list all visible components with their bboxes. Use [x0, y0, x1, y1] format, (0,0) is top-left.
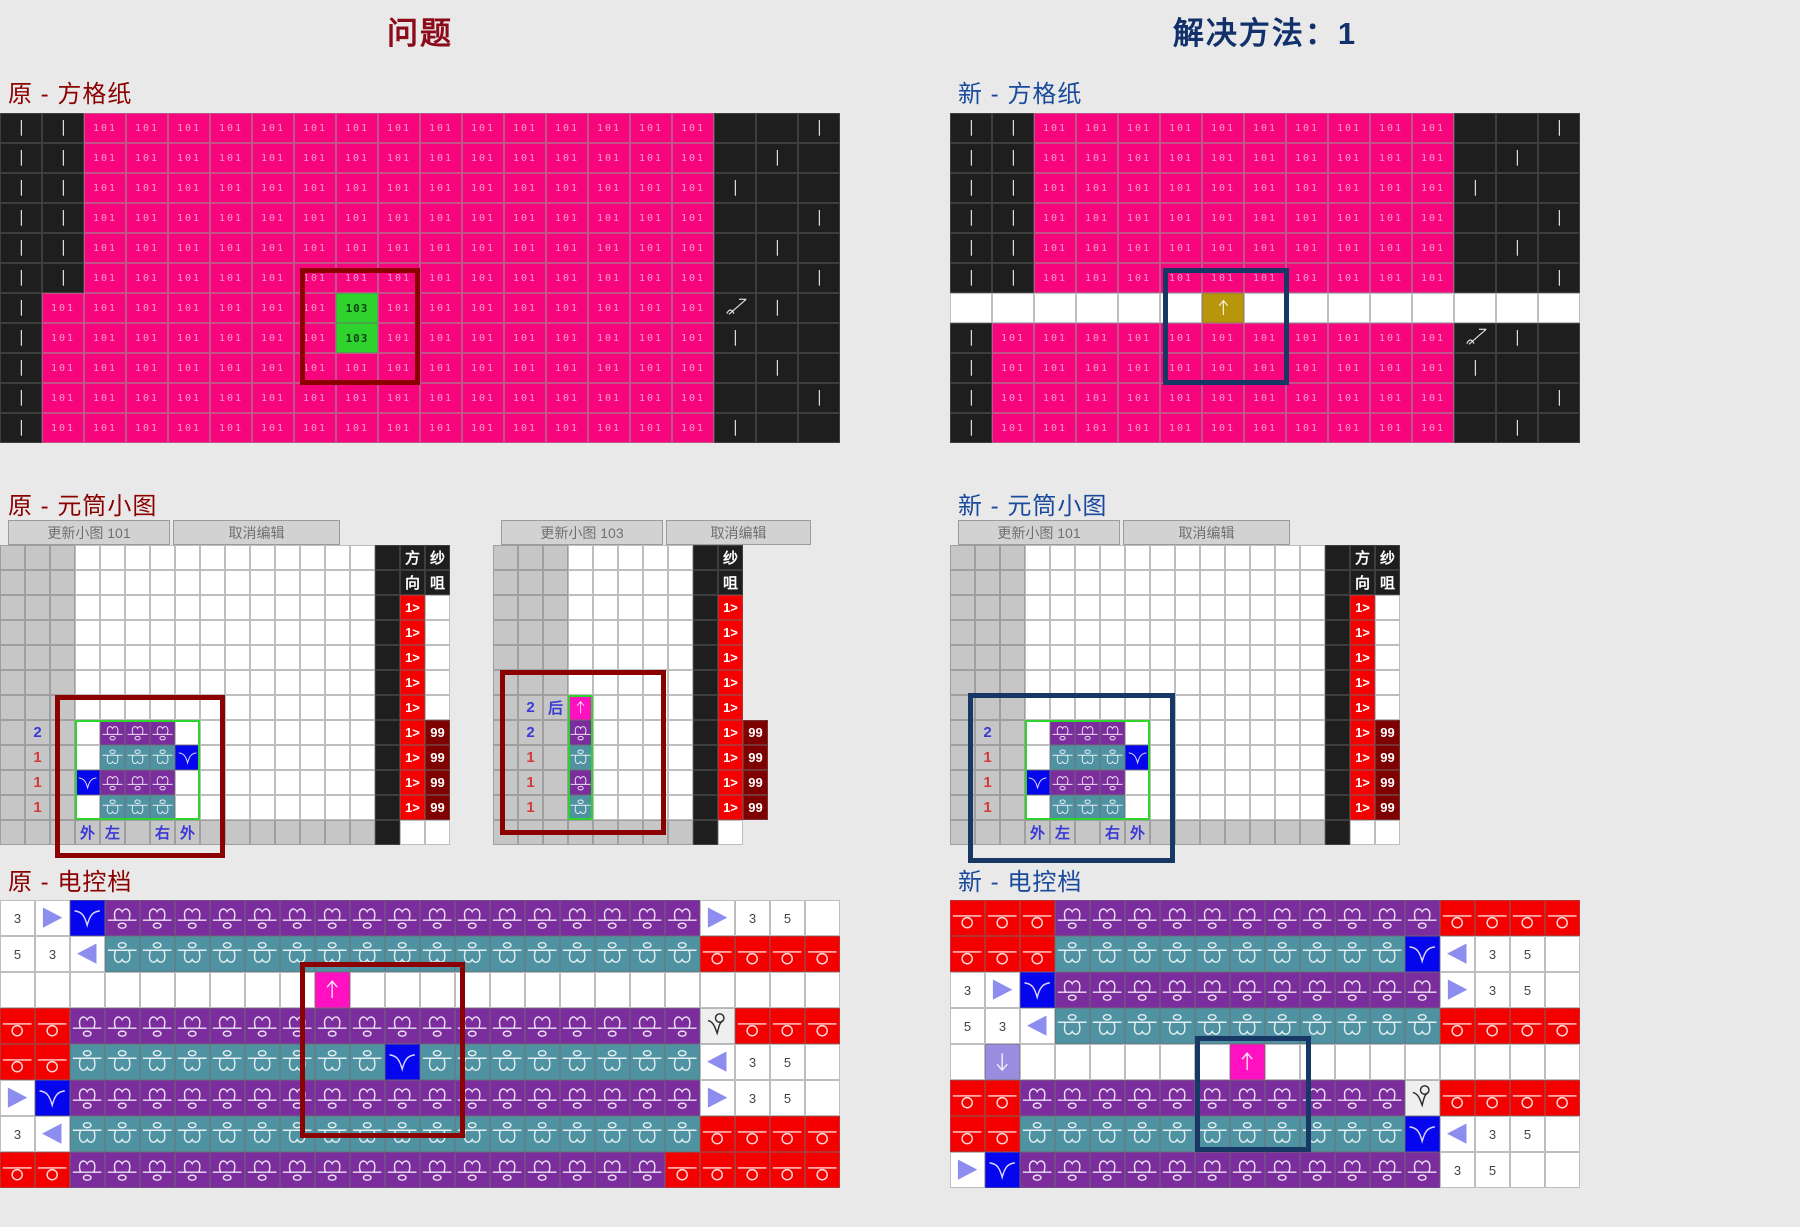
cell-needle[interactable]	[756, 233, 798, 263]
cell-stitch-101[interactable]: 101	[1034, 383, 1076, 413]
cell-empty[interactable]	[643, 670, 668, 695]
cell-front-knit[interactable]	[315, 1080, 350, 1116]
cell-empty[interactable]	[1175, 695, 1200, 720]
cell-stitch-101[interactable]: 101	[126, 113, 168, 143]
cell-empty[interactable]	[75, 620, 100, 645]
cell-red-knit[interactable]	[805, 1116, 840, 1152]
cell-front-knit[interactable]	[455, 1008, 490, 1044]
cell-empty[interactable]	[1075, 670, 1100, 695]
cell-stitch-101[interactable]: 101	[1244, 233, 1286, 263]
cell-needle[interactable]	[714, 413, 756, 443]
cell-stitch-101[interactable]: 101	[1118, 263, 1160, 293]
cell-front-knit[interactable]	[1265, 972, 1300, 1008]
cell-stitch-101[interactable]: 101	[1244, 413, 1286, 443]
cell-empty[interactable]	[1200, 795, 1225, 820]
cell-front-knit[interactable]	[1055, 972, 1090, 1008]
cell-stitch-101[interactable]: 101	[630, 413, 672, 443]
cell-empty[interactable]	[455, 972, 490, 1008]
cell-arrow-up[interactable]	[1230, 1044, 1265, 1080]
cell-empty[interactable]	[1150, 570, 1175, 595]
cell-front-knit[interactable]	[560, 1008, 595, 1044]
cell-empty[interactable]	[1100, 695, 1125, 720]
cell-needle[interactable]	[798, 113, 840, 143]
cell-red-knit[interactable]	[1475, 1008, 1510, 1044]
cell-stitch-101[interactable]: 101	[672, 383, 714, 413]
cell-empty[interactable]	[275, 695, 300, 720]
update-small-chart-101-button[interactable]: 更新小图 101	[8, 520, 170, 545]
cell-stitch-101[interactable]: 101	[1034, 353, 1076, 383]
cell-stitch-101[interactable]: 101	[210, 323, 252, 353]
cell-arrow-down[interactable]	[985, 1044, 1020, 1080]
cell-empty[interactable]	[1100, 620, 1125, 645]
cell-stitch-101[interactable]: 101	[1412, 353, 1454, 383]
cell-empty[interactable]	[668, 670, 693, 695]
cell-empty[interactable]	[200, 770, 225, 795]
cell-stitch-101[interactable]: 101	[252, 413, 294, 443]
cell-stitch-101[interactable]: 101	[168, 233, 210, 263]
cell-front-knit[interactable]	[1160, 1080, 1195, 1116]
cell-front-knit[interactable]	[150, 720, 175, 745]
cell-front-knit[interactable]	[1055, 1080, 1090, 1116]
cell-stitch-101[interactable]: 101	[992, 383, 1034, 413]
cell-stitch-101[interactable]: 101	[630, 263, 672, 293]
cell-empty[interactable]	[1225, 620, 1250, 645]
cell-stitch-101[interactable]: 101	[168, 203, 210, 233]
cell-empty[interactable]	[1250, 720, 1275, 745]
cell-stitch-101[interactable]: 101	[1412, 323, 1454, 353]
cell-empty[interactable]	[1250, 695, 1275, 720]
cell-empty[interactable]	[1225, 645, 1250, 670]
cell-stitch-101[interactable]: 101	[672, 353, 714, 383]
cell-black[interactable]	[756, 383, 798, 413]
cell-front-knit[interactable]	[560, 1152, 595, 1188]
cell-needle[interactable]	[1496, 323, 1538, 353]
cell-red-knit[interactable]	[0, 1044, 35, 1080]
cell-black[interactable]	[375, 570, 400, 595]
cell-front-knit[interactable]	[1300, 1080, 1335, 1116]
cell-needle[interactable]	[992, 173, 1034, 203]
cell-front-knit[interactable]	[1090, 1152, 1125, 1188]
cell-empty[interactable]	[1150, 595, 1175, 620]
cell-needle[interactable]	[0, 203, 42, 233]
cancel-edit-button[interactable]: 取消编辑	[1123, 520, 1290, 545]
cell-front-knit[interactable]	[175, 1152, 210, 1188]
cell-black[interactable]	[798, 323, 840, 353]
cell-front-knit[interactable]	[1370, 1080, 1405, 1116]
cell-black[interactable]	[756, 173, 798, 203]
cell-empty[interactable]	[275, 570, 300, 595]
cell-stitch-101[interactable]: 101	[294, 323, 336, 353]
cell-red-knit[interactable]	[1475, 1080, 1510, 1116]
cell-empty[interactable]	[1025, 620, 1050, 645]
cell-stitch-101[interactable]: 101	[1076, 383, 1118, 413]
cell-stitch-101[interactable]: 101	[252, 353, 294, 383]
cell-stitch-101[interactable]: 101	[1202, 323, 1244, 353]
cell-empty[interactable]	[643, 570, 668, 595]
cell-back-knit[interactable]	[525, 1044, 560, 1080]
cell-stitch-101[interactable]: 101	[1412, 203, 1454, 233]
cell-empty[interactable]	[105, 972, 140, 1008]
cell-back-knit[interactable]	[560, 936, 595, 972]
cell-back-knit[interactable]	[1300, 936, 1335, 972]
cell-empty[interactable]	[150, 620, 175, 645]
cell-empty[interactable]	[1100, 570, 1125, 595]
cell-needle[interactable]	[42, 113, 84, 143]
cell-empty[interactable]	[1125, 720, 1150, 745]
cell-tuck[interactable]	[1025, 770, 1050, 795]
cell-stitch-101[interactable]: 101	[294, 413, 336, 443]
cell-front-knit[interactable]	[1370, 972, 1405, 1008]
cell-empty[interactable]	[425, 670, 450, 695]
cell-empty[interactable]	[1300, 545, 1325, 570]
cell-empty[interactable]	[125, 570, 150, 595]
cell-black[interactable]	[375, 670, 400, 695]
cell-number[interactable]: 5	[950, 1008, 985, 1044]
cell-empty[interactable]	[75, 745, 100, 770]
cell-black[interactable]	[1325, 620, 1350, 645]
cell-front-knit[interactable]	[100, 720, 125, 745]
cell-empty[interactable]	[560, 972, 595, 1008]
cell-needle[interactable]	[1538, 383, 1580, 413]
cell-empty[interactable]	[1275, 670, 1300, 695]
cell-black[interactable]	[1325, 645, 1350, 670]
cell-empty[interactable]	[1025, 595, 1050, 620]
cell-empty[interactable]	[1300, 645, 1325, 670]
cell-front-knit[interactable]	[105, 1152, 140, 1188]
cell-black[interactable]	[1454, 113, 1496, 143]
cell-stitch-103[interactable]: 103	[336, 293, 378, 323]
cell-empty[interactable]	[200, 595, 225, 620]
cell-front-knit[interactable]	[525, 1152, 560, 1188]
cell-back-knit[interactable]	[1090, 936, 1125, 972]
cell-number[interactable]: 5	[1475, 1152, 1510, 1188]
cell-empty[interactable]	[643, 620, 668, 645]
cell-empty[interactable]	[1300, 770, 1325, 795]
cell-stitch-101[interactable]: 101	[336, 233, 378, 263]
cell-stitch-101[interactable]: 101	[546, 323, 588, 353]
cell-empty[interactable]	[100, 620, 125, 645]
cell-black[interactable]	[1454, 203, 1496, 233]
cell-red-knit[interactable]	[950, 936, 985, 972]
cell-stitch-101[interactable]: 101	[336, 203, 378, 233]
cell-stitch-101[interactable]: 101	[630, 353, 672, 383]
cell-stitch-101[interactable]: 101	[294, 293, 336, 323]
cell-empty[interactable]	[1050, 595, 1075, 620]
cell-empty[interactable]	[1175, 745, 1200, 770]
cell-red-knit[interactable]	[0, 1008, 35, 1044]
cell-direction[interactable]: 1>	[400, 720, 425, 745]
cell-empty[interactable]	[1025, 720, 1050, 745]
cell-stitch-101[interactable]: 101	[126, 263, 168, 293]
cell-empty[interactable]	[350, 745, 375, 770]
cell-stitch-101[interactable]: 101	[294, 143, 336, 173]
cell-stitch-101[interactable]: 101	[294, 383, 336, 413]
cell-stitch-101[interactable]: 101	[546, 203, 588, 233]
cell-needle[interactable]	[1496, 413, 1538, 443]
cell-front-knit[interactable]	[70, 1080, 105, 1116]
cell-empty[interactable]	[1050, 670, 1075, 695]
cell-red-knit[interactable]	[35, 1044, 70, 1080]
cell-front-knit[interactable]	[100, 770, 125, 795]
cell-empty[interactable]	[1100, 595, 1125, 620]
cell-empty[interactable]	[1375, 670, 1400, 695]
cell-empty[interactable]	[1125, 1044, 1160, 1080]
cell-stitch-101[interactable]: 101	[336, 143, 378, 173]
cell-empty[interactable]	[593, 620, 618, 645]
cell-needle[interactable]	[950, 173, 992, 203]
cell-stitch-101[interactable]: 101	[210, 173, 252, 203]
cell-carriage-left[interactable]	[1440, 936, 1475, 972]
cell-red-knit[interactable]	[1510, 1080, 1545, 1116]
cell-stitch-101[interactable]: 101	[168, 383, 210, 413]
cell-stitch-101[interactable]: 101	[588, 413, 630, 443]
cell-stitch-101[interactable]: 101	[252, 383, 294, 413]
cell-front-knit[interactable]	[125, 770, 150, 795]
cell-needle[interactable]	[1538, 113, 1580, 143]
cell-front-knit[interactable]	[595, 900, 630, 936]
cell-empty[interactable]	[275, 545, 300, 570]
cell-empty[interactable]	[618, 595, 643, 620]
cell-red-knit[interactable]	[950, 900, 985, 936]
cell-empty[interactable]	[1300, 570, 1325, 595]
cell-stitch-101[interactable]: 101	[1118, 413, 1160, 443]
cell-needle[interactable]	[0, 173, 42, 203]
cell-empty[interactable]	[200, 570, 225, 595]
cell-stitch-101[interactable]: 101	[1370, 353, 1412, 383]
cell-stitch-101[interactable]: 101	[126, 293, 168, 323]
cell-empty[interactable]	[425, 820, 450, 845]
cell-stitch-101[interactable]: 101	[1034, 323, 1076, 353]
cell-front-knit[interactable]	[175, 900, 210, 936]
cell-stitch-101[interactable]: 101	[294, 203, 336, 233]
cell-stitch-101[interactable]: 101	[462, 173, 504, 203]
cell-empty[interactable]	[350, 620, 375, 645]
cell-empty[interactable]	[225, 720, 250, 745]
cell-red-knit[interactable]	[735, 1008, 770, 1044]
cell-empty[interactable]	[1125, 595, 1150, 620]
cell-empty[interactable]	[643, 720, 668, 745]
cell-empty[interactable]	[125, 595, 150, 620]
cell-back-knit[interactable]	[1300, 1116, 1335, 1152]
cell-stitch-101[interactable]: 101	[630, 203, 672, 233]
cell-stitch-101[interactable]: 101	[336, 413, 378, 443]
cell-front-knit[interactable]	[1050, 770, 1075, 795]
cell-drop-stitch[interactable]	[700, 1008, 735, 1044]
cell-stitch-101[interactable]: 101	[168, 323, 210, 353]
cell-front-knit[interactable]	[280, 1152, 315, 1188]
cell-empty[interactable]	[225, 570, 250, 595]
cell-front-knit[interactable]	[1100, 770, 1125, 795]
cell-empty[interactable]	[643, 545, 668, 570]
cell-empty[interactable]	[200, 545, 225, 570]
cell-empty[interactable]	[1076, 293, 1118, 323]
cell-back-knit[interactable]	[568, 745, 593, 770]
cell-empty[interactable]	[618, 645, 643, 670]
cell-back-knit[interactable]	[665, 1044, 700, 1080]
cell-empty[interactable]	[1150, 795, 1175, 820]
cell-front-knit[interactable]	[1335, 900, 1370, 936]
cell-stitch-101[interactable]: 101	[420, 233, 462, 263]
cell-stitch-101[interactable]: 101	[546, 353, 588, 383]
cell-stitch-101[interactable]: 101	[336, 173, 378, 203]
cell-empty[interactable]	[568, 595, 593, 620]
cell-red-knit[interactable]	[985, 1116, 1020, 1152]
cell-number[interactable]: 5	[0, 936, 35, 972]
cell-empty[interactable]	[275, 595, 300, 620]
cell-red-knit[interactable]	[805, 1152, 840, 1188]
cell-empty[interactable]	[1275, 745, 1300, 770]
cell-stitch-101[interactable]: 101	[420, 263, 462, 293]
cell-stitch-101[interactable]: 101	[1286, 143, 1328, 173]
cell-needle[interactable]	[0, 413, 42, 443]
cell-front-knit[interactable]	[385, 900, 420, 936]
cell-stitch-101[interactable]: 101	[1328, 173, 1370, 203]
cell-empty[interactable]	[175, 695, 200, 720]
cell-front-knit[interactable]	[1195, 1152, 1230, 1188]
cell-front-knit[interactable]	[280, 1080, 315, 1116]
cell-black[interactable]	[756, 203, 798, 233]
cell-black[interactable]	[1496, 353, 1538, 383]
cell-stitch-101[interactable]: 101	[630, 323, 672, 353]
cell-stitch-101[interactable]: 101	[1412, 233, 1454, 263]
cell-back-knit[interactable]	[1265, 1008, 1300, 1044]
cell-empty[interactable]	[350, 720, 375, 745]
cell-back-knit[interactable]	[630, 1044, 665, 1080]
cell-empty[interactable]	[1370, 1044, 1405, 1080]
cell-empty[interactable]	[150, 670, 175, 695]
cell-stitch-101[interactable]: 101	[1118, 143, 1160, 173]
cell-stitch-101[interactable]: 101	[504, 383, 546, 413]
cell-red-knit[interactable]	[700, 1116, 735, 1152]
cell-empty[interactable]	[1075, 545, 1100, 570]
cell-front-knit[interactable]	[455, 1080, 490, 1116]
cell-empty[interactable]	[100, 595, 125, 620]
cell-empty[interactable]	[75, 545, 100, 570]
cell-carriage-right[interactable]	[950, 1152, 985, 1188]
cell-empty[interactable]	[593, 570, 618, 595]
cell-direction[interactable]: 1>	[1350, 720, 1375, 745]
cell-empty[interactable]	[1125, 570, 1150, 595]
cell-front-knit[interactable]	[1370, 1152, 1405, 1188]
cell-stitch-101[interactable]: 101	[1286, 203, 1328, 233]
cell-empty[interactable]	[1286, 293, 1328, 323]
cell-empty[interactable]	[350, 972, 385, 1008]
cell-back-knit[interactable]	[350, 936, 385, 972]
cell-empty[interactable]	[250, 570, 275, 595]
cell-empty[interactable]	[1250, 670, 1275, 695]
cell-back-knit[interactable]	[525, 1116, 560, 1152]
cell-needle[interactable]	[798, 203, 840, 233]
cell-stitch-101[interactable]: 101	[1370, 113, 1412, 143]
cell-back-knit[interactable]	[630, 936, 665, 972]
cell-black[interactable]	[798, 173, 840, 203]
cell-direction[interactable]: 1>	[400, 795, 425, 820]
cell-red-knit[interactable]	[1440, 900, 1475, 936]
cell-front-knit[interactable]	[1335, 972, 1370, 1008]
cell-back-knit[interactable]	[350, 1044, 385, 1080]
cell-back-knit[interactable]	[150, 745, 175, 770]
cell-empty[interactable]	[1175, 645, 1200, 670]
cell-stitch-101[interactable]: 101	[1076, 143, 1118, 173]
cancel-edit-button[interactable]: 取消编辑	[173, 520, 340, 545]
cell-stitch-101[interactable]: 101	[294, 263, 336, 293]
cell-empty[interactable]	[568, 545, 593, 570]
cell-front-knit[interactable]	[245, 1152, 280, 1188]
cell-front-knit[interactable]	[350, 900, 385, 936]
cell-black[interactable]	[1454, 263, 1496, 293]
cell-back-knit[interactable]	[1100, 745, 1125, 770]
cell-empty[interactable]	[1200, 695, 1225, 720]
cell-stitch-101[interactable]: 101	[1202, 263, 1244, 293]
cell-empty[interactable]	[665, 972, 700, 1008]
cell-empty[interactable]	[1150, 770, 1175, 795]
cell-empty[interactable]	[1125, 695, 1150, 720]
cell-empty[interactable]	[225, 695, 250, 720]
cell-empty[interactable]	[1275, 645, 1300, 670]
cell-empty[interactable]	[1250, 545, 1275, 570]
cell-empty[interactable]	[300, 695, 325, 720]
cell-stitch-101[interactable]: 101	[672, 263, 714, 293]
cell-back-knit[interactable]	[1090, 1116, 1125, 1152]
cell-number[interactable]: 5	[770, 1080, 805, 1116]
cell-needle[interactable]	[0, 293, 42, 323]
cell-front-knit[interactable]	[1300, 1152, 1335, 1188]
cell-front-knit[interactable]	[1300, 972, 1335, 1008]
cell-stitch-101[interactable]: 101	[252, 203, 294, 233]
cell-stitch-101[interactable]: 101	[210, 113, 252, 143]
cell-empty[interactable]	[1545, 1116, 1580, 1152]
cell-empty[interactable]	[275, 645, 300, 670]
cell-red-knit[interactable]	[0, 1152, 35, 1188]
cell-stitch-101[interactable]: 101	[42, 353, 84, 383]
cell-front-knit[interactable]	[1160, 900, 1195, 936]
cell-stitch-101[interactable]: 101	[378, 143, 420, 173]
cell-front-knit[interactable]	[150, 770, 175, 795]
cell-direction[interactable]: 1>	[400, 595, 425, 620]
cell-stitch-101[interactable]: 101	[1328, 233, 1370, 263]
cell-stitch-101[interactable]: 101	[294, 113, 336, 143]
cell-stitch-101[interactable]: 101	[252, 113, 294, 143]
cell-back-knit[interactable]	[1335, 936, 1370, 972]
cell-front-knit[interactable]	[568, 770, 593, 795]
cell-empty[interactable]	[200, 745, 225, 770]
cell-red-knit[interactable]	[1545, 1080, 1580, 1116]
cell-stitch-101[interactable]: 101	[1286, 323, 1328, 353]
cell-back-knit[interactable]	[385, 936, 420, 972]
cell-front-knit[interactable]	[1300, 900, 1335, 936]
cell-empty[interactable]	[210, 972, 245, 1008]
cell-empty[interactable]	[250, 645, 275, 670]
cell-back-knit[interactable]	[210, 1044, 245, 1080]
cell-stitch-101[interactable]: 101	[992, 413, 1034, 443]
cancel-edit-button[interactable]: 取消编辑	[666, 520, 811, 545]
cell-empty[interactable]	[300, 570, 325, 595]
cell-stitch-101[interactable]: 101	[1118, 173, 1160, 203]
cell-front-knit[interactable]	[140, 1152, 175, 1188]
cell-back-knit[interactable]	[315, 1116, 350, 1152]
cell-stitch-101[interactable]: 101	[1202, 113, 1244, 143]
cell-stitch-101[interactable]: 101	[1118, 323, 1160, 353]
cell-stitch-101[interactable]: 101	[1370, 323, 1412, 353]
cell-stitch-101[interactable]: 101	[1328, 203, 1370, 233]
cell-empty[interactable]	[300, 545, 325, 570]
cell-red-knit[interactable]	[735, 1116, 770, 1152]
cell-empty[interactable]	[1160, 1044, 1195, 1080]
cell-back-knit[interactable]	[490, 936, 525, 972]
cell-needle[interactable]	[798, 263, 840, 293]
cell-back-knit[interactable]	[525, 936, 560, 972]
cell-empty[interactable]	[1200, 670, 1225, 695]
